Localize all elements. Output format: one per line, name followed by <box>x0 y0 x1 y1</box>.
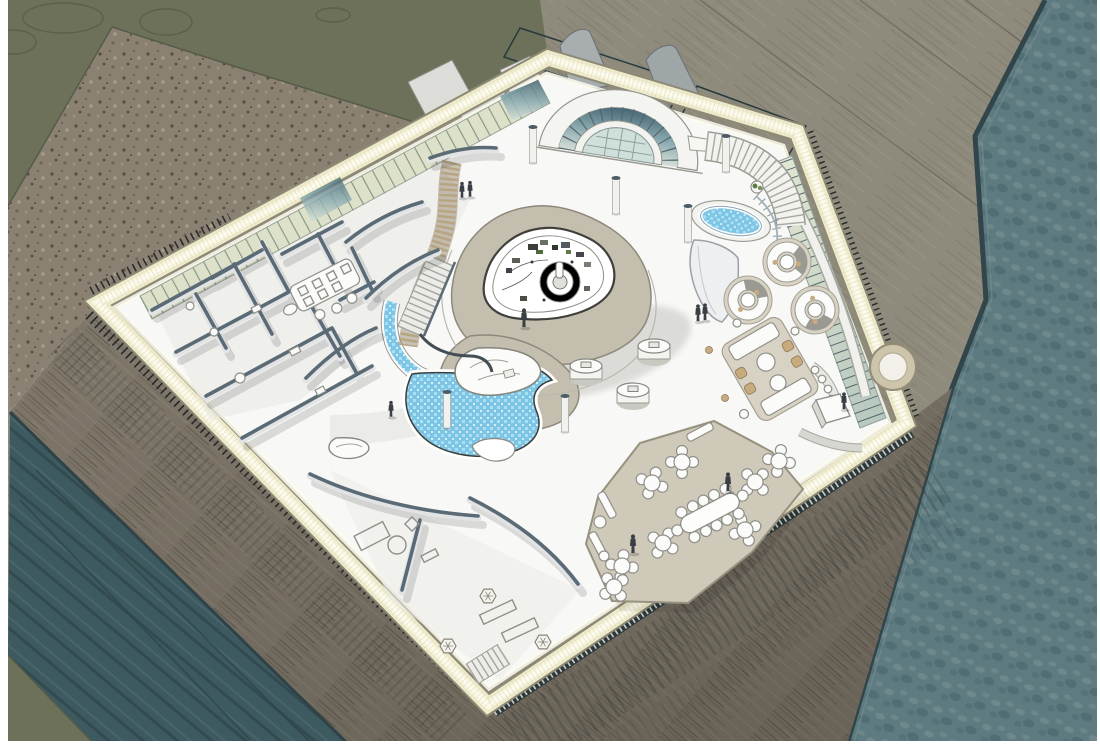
exhibit-pedestal <box>570 359 602 386</box>
column <box>443 390 452 430</box>
hex-floor-marker <box>480 589 496 603</box>
pouf <box>706 347 713 354</box>
pouf <box>740 410 749 419</box>
exhibit-pedestal <box>638 339 670 366</box>
plant <box>753 184 758 189</box>
service-stair <box>472 654 504 674</box>
round-planter <box>870 344 916 390</box>
column <box>561 394 570 434</box>
border-bottom <box>0 741 1100 748</box>
border-left <box>0 0 8 748</box>
side-table <box>599 551 609 561</box>
column <box>529 125 538 165</box>
pouf <box>791 327 799 335</box>
rendering-stage: Aerial cutaway rendering of a pentagonal… <box>0 0 1100 748</box>
column <box>612 176 621 216</box>
column <box>684 204 693 244</box>
plant <box>758 186 762 190</box>
pouf <box>733 319 741 327</box>
hex-floor-marker <box>440 639 456 653</box>
exhibit-pedestal <box>617 383 649 410</box>
pouf <box>722 395 729 402</box>
side-table <box>594 516 606 528</box>
column <box>722 134 731 174</box>
site-plan-rendering <box>0 0 1100 748</box>
relief-sculpture <box>329 438 369 459</box>
hex-floor-marker <box>535 635 551 649</box>
